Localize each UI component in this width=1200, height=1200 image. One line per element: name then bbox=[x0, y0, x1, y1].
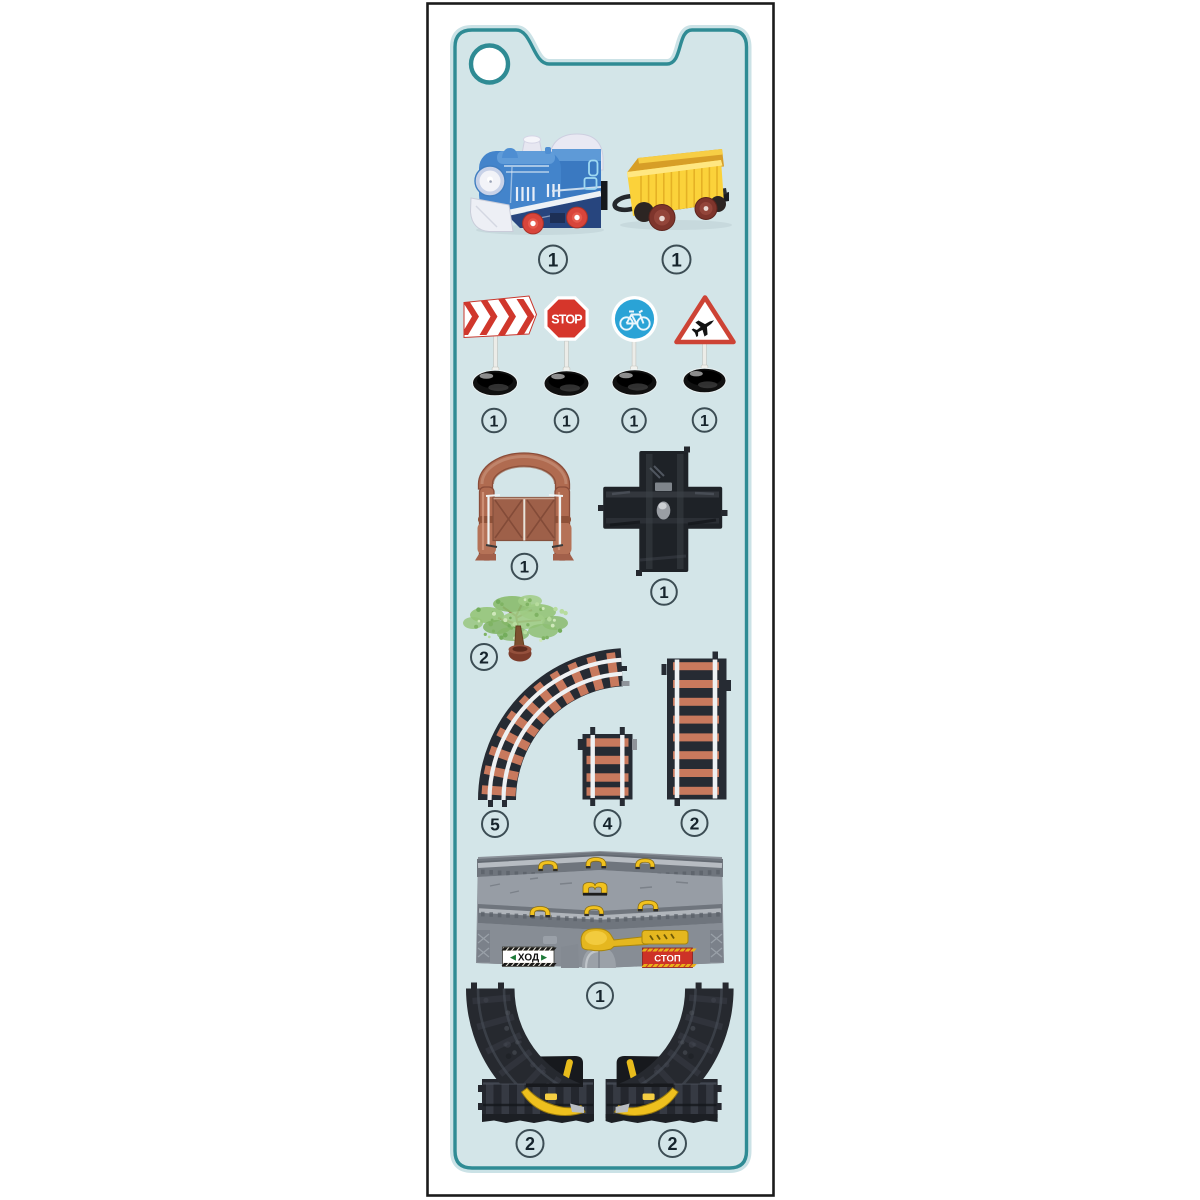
svg-text:◄ХОД►: ◄ХОД► bbox=[508, 953, 549, 964]
svg-text:1: 1 bbox=[562, 413, 571, 430]
svg-text:2: 2 bbox=[667, 1134, 677, 1154]
svg-text:СТОП: СТОП bbox=[654, 954, 681, 965]
svg-text:1: 1 bbox=[671, 250, 682, 271]
svg-text:1: 1 bbox=[630, 413, 639, 430]
svg-text:5: 5 bbox=[490, 814, 500, 834]
svg-text:2: 2 bbox=[525, 1134, 535, 1154]
svg-text:1: 1 bbox=[700, 413, 709, 430]
svg-text:2: 2 bbox=[690, 813, 700, 833]
svg-text:STOP: STOP bbox=[551, 313, 582, 327]
svg-text:2: 2 bbox=[479, 647, 489, 667]
svg-text:4: 4 bbox=[603, 813, 613, 833]
svg-text:1: 1 bbox=[595, 986, 605, 1006]
svg-text:1: 1 bbox=[548, 250, 559, 271]
svg-text:1: 1 bbox=[659, 583, 668, 602]
svg-text:1: 1 bbox=[520, 558, 529, 577]
svg-text:1: 1 bbox=[490, 413, 499, 430]
